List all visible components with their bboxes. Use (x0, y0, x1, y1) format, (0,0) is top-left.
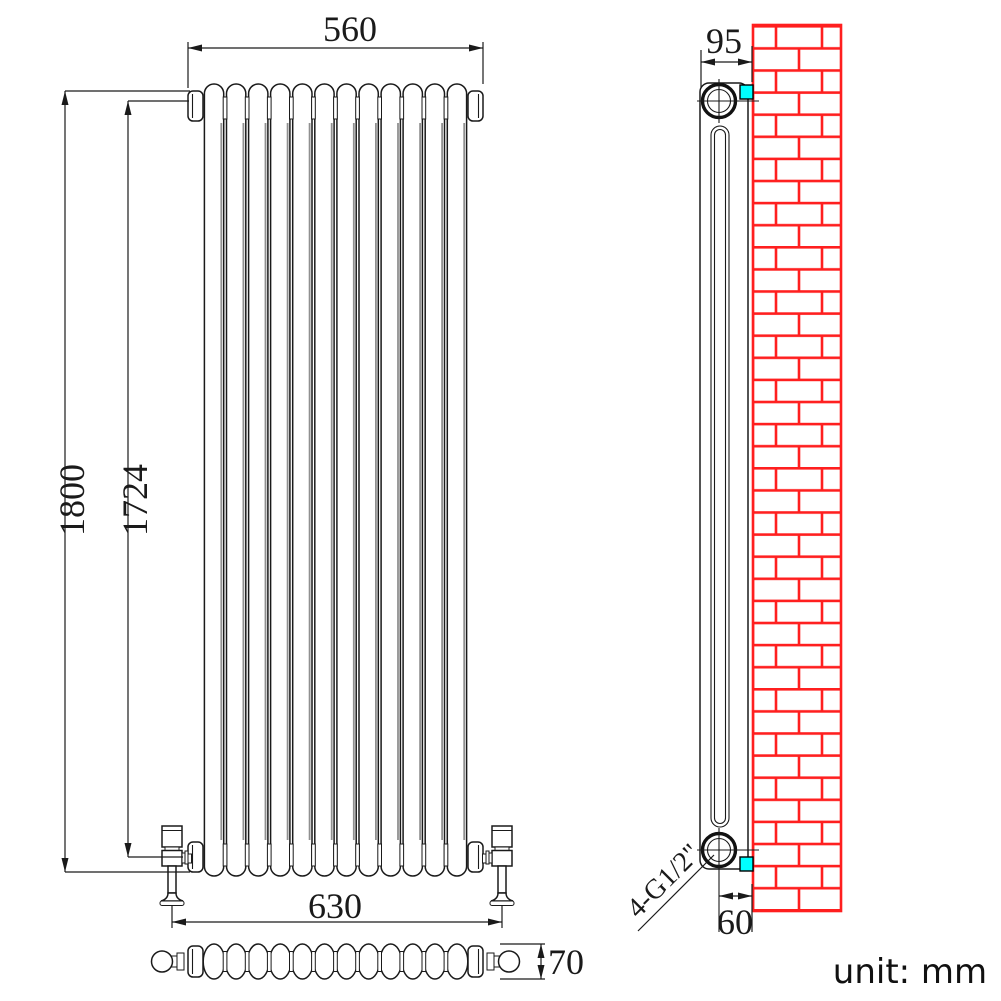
plan-end-cap-right (468, 946, 483, 977)
dim-60-label: 60 (717, 902, 753, 942)
side-view (697, 25, 841, 932)
plan-column-oval (225, 944, 247, 979)
column-joint-top (245, 97, 249, 119)
column-joint-top (400, 97, 404, 119)
column-joint-bottom (267, 844, 271, 866)
plan-view (152, 944, 520, 979)
dim-95: 95 (701, 21, 752, 88)
plan-column-joint (378, 952, 382, 972)
plan-column-joint (267, 952, 271, 972)
plan-column-joint (400, 952, 404, 972)
thread-label: 4-G1/2" (621, 838, 707, 924)
column-joint-top (356, 97, 360, 119)
plan-column-oval (203, 944, 225, 979)
column-joint-bottom (334, 844, 338, 866)
plan-column-joint (356, 952, 360, 972)
drawing-svg: 560 1800 1724 630 (0, 0, 1001, 1001)
dim-630-label: 630 (308, 886, 362, 926)
plan-column-oval (446, 944, 468, 979)
end-cap-top-left (188, 91, 203, 121)
column-joint-bottom (223, 844, 227, 866)
column-joint-bottom (290, 844, 294, 866)
column-joint-bottom (444, 844, 448, 866)
plan-column-joint (444, 952, 448, 972)
unit-note: unit: mm (833, 952, 987, 992)
column-joint-bottom (312, 844, 316, 866)
column-joint-bottom (356, 844, 360, 866)
front-columns (204, 84, 466, 876)
plan-column-oval (424, 944, 446, 979)
dim-1724: 1724 (115, 101, 189, 857)
end-cap-bottom-right (468, 842, 483, 872)
column-joint-top (223, 97, 227, 119)
radiator-technical-drawing: 560 1800 1724 630 (0, 0, 1001, 1001)
plan-column-joint (334, 952, 338, 972)
end-cap-top-right (468, 91, 483, 121)
brick-wall (753, 25, 841, 911)
column-joint-top (334, 97, 338, 119)
column-joint-top (422, 97, 426, 119)
plan-end-cap-left (188, 946, 203, 977)
plan-valve-right (487, 951, 520, 972)
dim-1724-label: 1724 (115, 464, 155, 536)
dim-95-label: 95 (706, 21, 742, 61)
wall-bracket-top (740, 85, 753, 99)
plan-column-oval (336, 944, 358, 979)
dim-560-label: 560 (323, 9, 377, 49)
radiator-valve-right (483, 826, 515, 928)
plan-column-joint (312, 952, 316, 972)
plan-column-oval (402, 944, 424, 979)
radiator-valve-left (160, 826, 192, 928)
dim-630: 630 (172, 886, 502, 926)
column-joint-top (378, 97, 382, 119)
plan-column-oval (270, 944, 292, 979)
column-joint-top (312, 97, 316, 119)
column-joint-bottom (378, 844, 382, 866)
column-joint-bottom (422, 844, 426, 866)
column-joint-top (290, 97, 294, 119)
column-joint-bottom (400, 844, 404, 866)
wall-bracket-bottom (740, 857, 753, 871)
column-joint-bottom (245, 844, 249, 866)
plan-column-oval (292, 944, 314, 979)
dim-70-label: 70 (548, 942, 584, 982)
plan-column-joint (422, 952, 426, 972)
dim-1800-label: 1800 (52, 464, 92, 536)
dim-560: 560 (188, 9, 483, 88)
column-joint-top (267, 97, 271, 119)
plan-valve-left (152, 951, 185, 972)
plan-column-oval (380, 944, 402, 979)
side-body (700, 83, 748, 869)
dim-60: 60 (717, 884, 753, 942)
plan-column-oval (314, 944, 336, 979)
plan-column-joint (223, 952, 227, 972)
column-joint-top (444, 97, 448, 119)
plan-column-oval (358, 944, 380, 979)
front-view (160, 84, 514, 928)
plan-column-joint (290, 952, 294, 972)
plan-column-joint (245, 952, 249, 972)
plan-column-oval (247, 944, 269, 979)
